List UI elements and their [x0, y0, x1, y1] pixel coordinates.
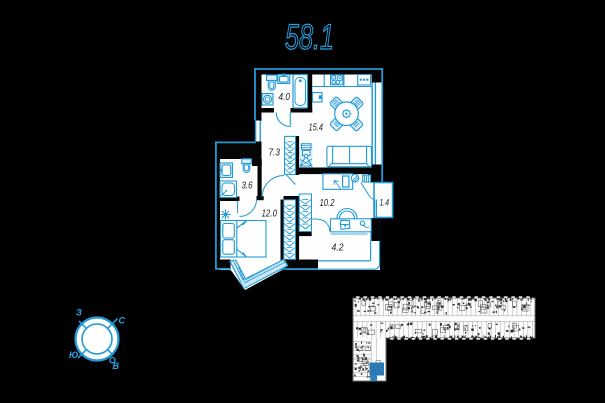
svg-text:12.0: 12.0	[262, 208, 278, 220]
svg-text:58.1: 58.1	[285, 18, 334, 57]
svg-text:7.3: 7.3	[269, 147, 281, 159]
svg-text:3.6: 3.6	[242, 180, 253, 192]
svg-text:В: В	[113, 361, 120, 371]
svg-text:15.4: 15.4	[309, 122, 324, 134]
svg-text:З: З	[76, 308, 82, 318]
svg-text:4.2: 4.2	[332, 242, 344, 254]
svg-text:Ю: Ю	[69, 350, 78, 360]
svg-text:10.2: 10.2	[320, 197, 335, 209]
svg-text:С: С	[119, 316, 126, 326]
svg-text:1.4: 1.4	[380, 198, 390, 209]
svg-text:4.0: 4.0	[279, 91, 291, 103]
